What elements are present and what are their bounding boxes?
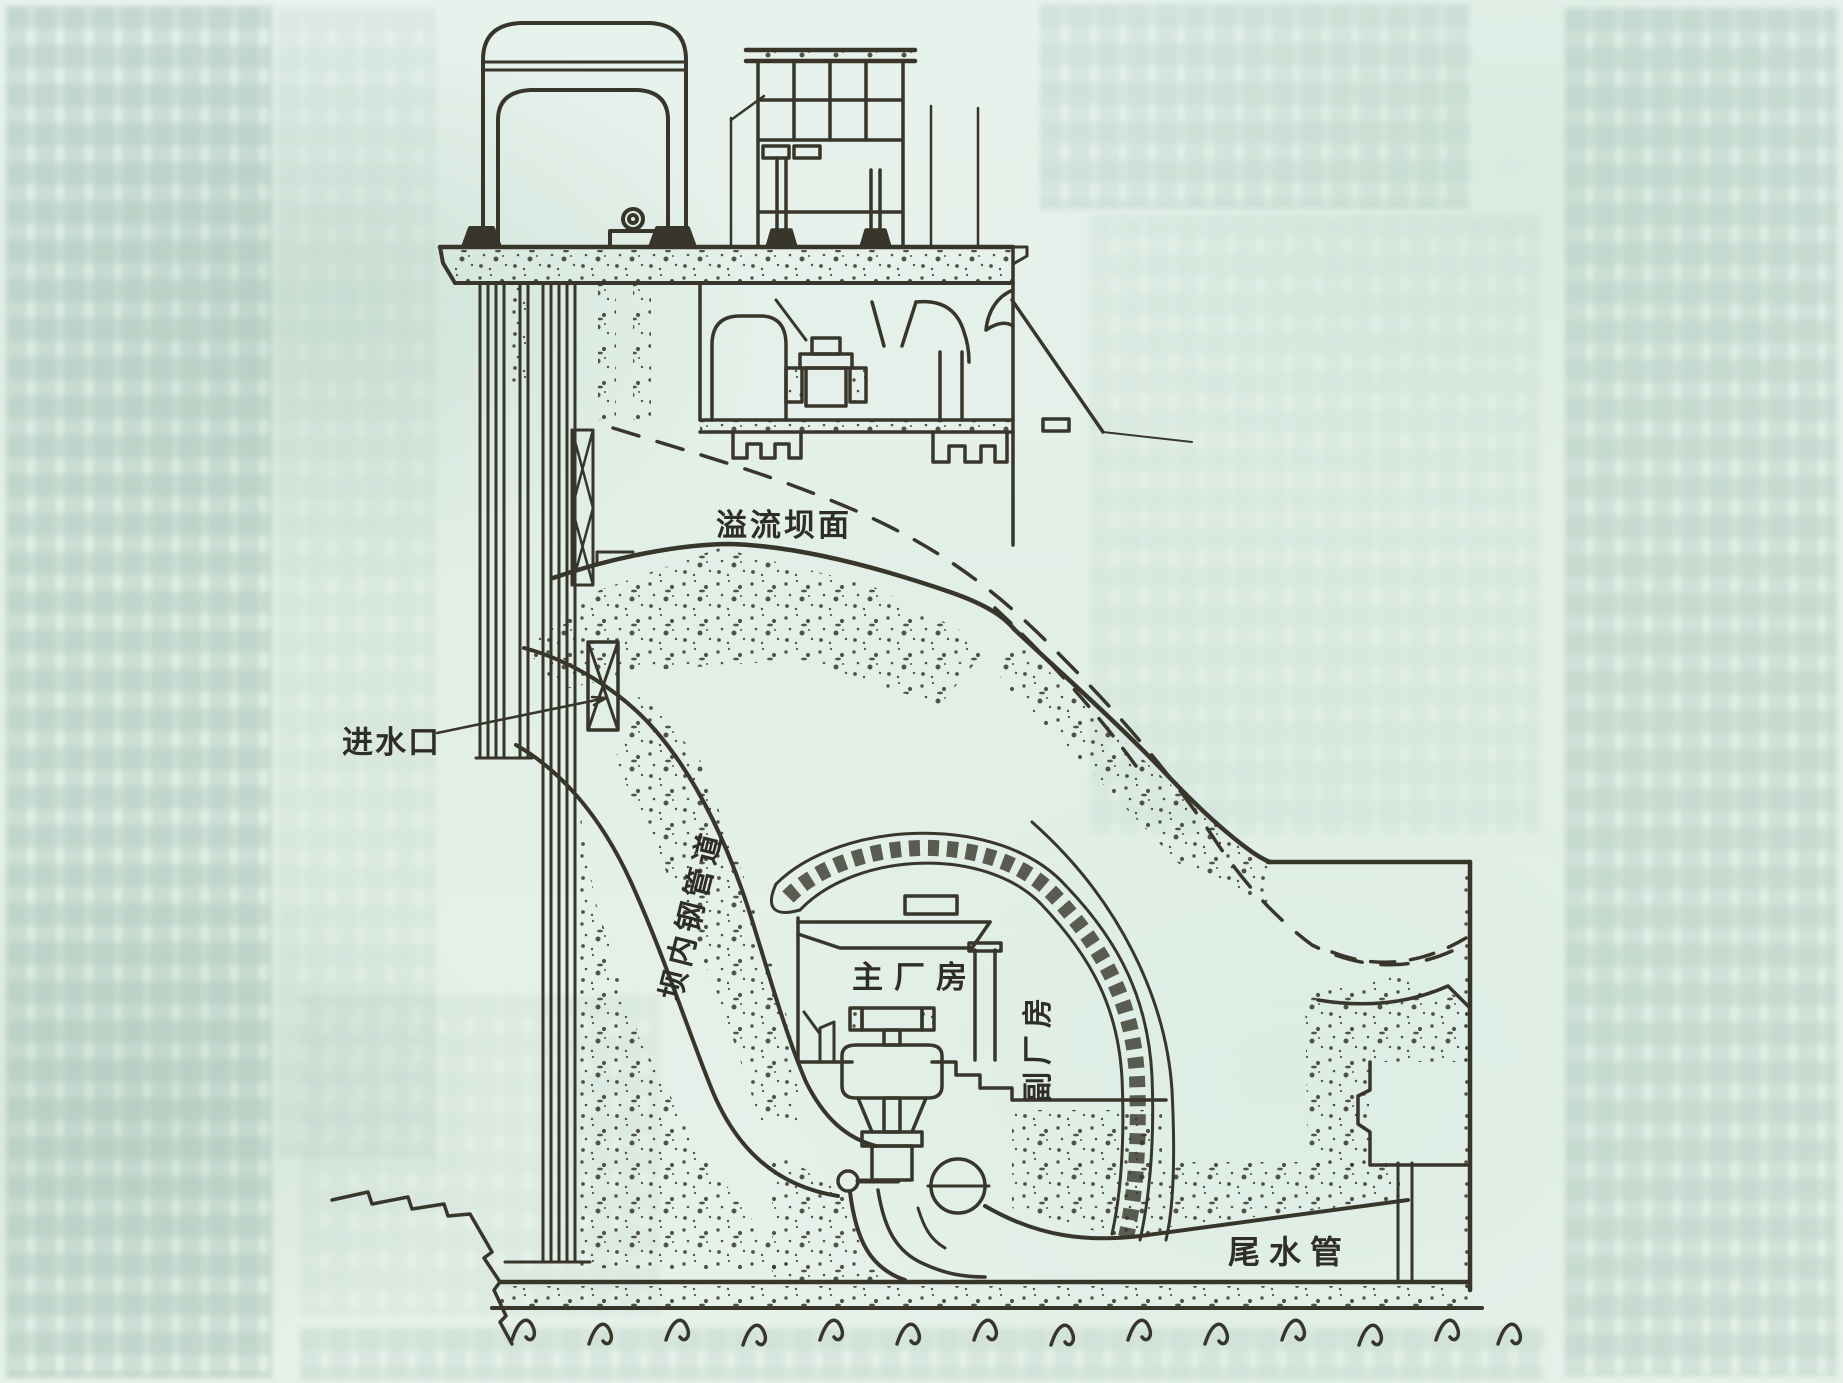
pier-stipple xyxy=(598,283,616,420)
rotor xyxy=(862,1008,922,1030)
pipes xyxy=(940,352,962,420)
bucket-dashed-line xyxy=(1332,938,1466,962)
trash-rack-and-gate-slots xyxy=(476,283,593,1262)
funnel xyxy=(872,302,916,346)
valve-lever xyxy=(776,300,806,340)
dam-cross-section-diagram: 溢流坝面 进水口 坝内钢管道 主厂房 副厂房 尾水管 xyxy=(0,0,1843,1383)
valve-core xyxy=(806,368,846,406)
lower-shaft xyxy=(884,1098,900,1132)
label-draft-tube: 尾水管 xyxy=(1228,1234,1351,1270)
valve-flange xyxy=(850,368,866,402)
turbine-pit xyxy=(858,1098,926,1132)
lifting-ring-icon xyxy=(623,209,643,229)
valve-body xyxy=(800,354,852,368)
gallery-openings xyxy=(933,432,1007,462)
crane-foot xyxy=(463,228,500,247)
crest-pier xyxy=(986,247,1192,545)
upper-shaft xyxy=(884,1030,900,1045)
leader-line xyxy=(1103,432,1192,442)
excavation-line xyxy=(332,1192,512,1344)
hall-column xyxy=(975,950,995,1060)
rock-hatching xyxy=(512,1320,1520,1345)
valve-chamber xyxy=(700,283,1013,462)
stator xyxy=(842,1045,942,1098)
crest-deck-stipple xyxy=(455,250,1015,283)
label-main-powerhouse: 主厂房 xyxy=(852,960,978,995)
runner xyxy=(872,1146,912,1180)
gallery-openings xyxy=(733,432,801,458)
scroll-case-section-left xyxy=(838,1171,858,1191)
label-intake: 进水口 xyxy=(342,725,441,760)
lifting-ring-icon xyxy=(629,215,637,223)
label-auxiliary-powerhouse: 副厂房 xyxy=(1022,991,1055,1102)
scanned-book-page: 溢流坝面 进水口 坝内钢管道 主厂房 副厂房 尾水管 xyxy=(0,0,1843,1383)
aux-machine xyxy=(804,1012,834,1062)
bridge-crane xyxy=(905,896,957,914)
rotor-end xyxy=(850,1008,862,1030)
valve-flange xyxy=(786,368,802,402)
tank xyxy=(712,316,786,420)
rotor-end xyxy=(922,1008,934,1030)
machine-hall xyxy=(798,896,1166,1100)
foundation-stipple xyxy=(500,1286,1470,1306)
valve-bonnet xyxy=(812,338,840,354)
flap-gate xyxy=(1043,419,1069,431)
wall-block xyxy=(1358,1062,1468,1165)
concrete-stipple-regions xyxy=(455,50,1471,1306)
hoist-building xyxy=(731,50,978,247)
draft-liner xyxy=(918,1208,945,1248)
gantry-crane xyxy=(463,23,695,247)
outlet-gate-slot xyxy=(1398,1163,1412,1282)
generator-unit xyxy=(838,1008,989,1213)
pier-stipple xyxy=(633,283,651,420)
label-spillway-face: 溢流坝面 xyxy=(716,508,852,543)
